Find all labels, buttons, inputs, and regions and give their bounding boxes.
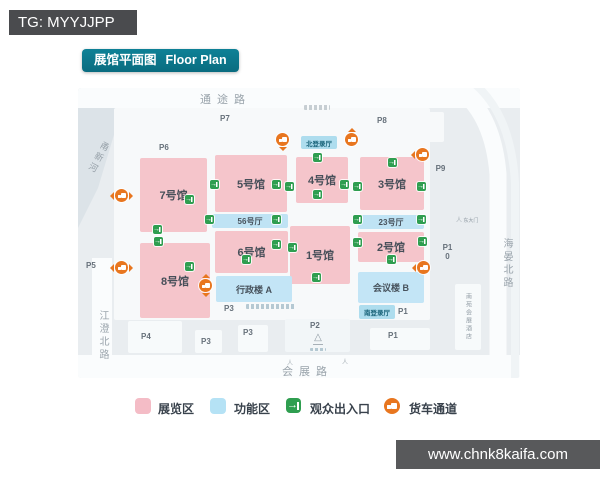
entrance-icon xyxy=(272,215,281,224)
tiny-text-smudge xyxy=(304,105,330,110)
truck-route-icon xyxy=(115,261,128,274)
parking-label-p1a: P1 xyxy=(398,307,408,316)
parking-label-p5: P5 xyxy=(86,261,96,270)
page-title: 展馆平面图Floor Plan xyxy=(82,49,239,72)
entrance-icon xyxy=(154,237,163,246)
pedestrian-icon: 人 xyxy=(456,218,462,224)
truck-route-icon xyxy=(416,148,429,161)
north-lobby: 北登录厅 xyxy=(301,136,337,149)
parking-label-p10: P10 xyxy=(442,243,453,261)
legend: 展览区 功能区 观众出入口 货车通道 xyxy=(0,392,600,422)
truck-route-icon xyxy=(199,279,212,292)
entrance-icon xyxy=(353,238,362,247)
watermark-url: www.chnk8kaifa.com xyxy=(396,440,600,469)
legend-truck-label: 货车通道 xyxy=(409,400,457,417)
road-left-label: 江澄北路 xyxy=(95,310,110,362)
title-en: Floor Plan xyxy=(166,53,227,67)
tiny-text-smudge xyxy=(310,348,326,351)
entrance-icon xyxy=(185,262,194,271)
road-right-label: 海晏北路 xyxy=(499,238,514,290)
entrance-icon xyxy=(272,180,281,189)
road-top-label: 通途路 xyxy=(200,91,251,107)
parking-lot-p1 xyxy=(370,328,430,350)
parking-label-p9: P9 xyxy=(435,164,446,173)
parking-lot-p4 xyxy=(128,321,182,353)
parking-label-p2: P2 xyxy=(310,321,320,330)
entrance-icon xyxy=(153,225,162,234)
tiny-text-smudge xyxy=(246,304,296,309)
truck-route-icon xyxy=(417,261,430,274)
entrance-icon xyxy=(312,273,321,282)
hall-23: 23号厅 xyxy=(358,215,424,229)
legend-function-label: 功能区 xyxy=(234,400,270,417)
truck-route-icon xyxy=(276,133,289,146)
parking-label-p1b: P1 xyxy=(388,331,398,340)
pedestrian-icon: 人 xyxy=(342,357,348,366)
floor-plan-map: 通途路 会展路 江澄北路 海晏北路 甬新河 7号馆 8号馆 5号馆 56号厅 6… xyxy=(78,88,520,378)
parking-label-p3c: P3 xyxy=(243,328,253,337)
legend-exhibition-swatch xyxy=(135,398,151,414)
parking-label-p7: P7 xyxy=(220,114,230,123)
pedestrian-icon: 人 xyxy=(287,358,293,367)
title-cn: 展馆平面图 xyxy=(94,53,157,67)
south-lobby: 南登录厅 xyxy=(359,305,395,319)
conference-building-b: 会议楼 B xyxy=(358,272,424,303)
entrance-icon xyxy=(210,180,219,189)
entrance-icon xyxy=(353,215,362,224)
entrance-icon xyxy=(288,243,297,252)
hotel-building: 南苑会展酒店 xyxy=(455,284,481,350)
hall-6: 6号馆 xyxy=(215,231,288,273)
entrance-icon xyxy=(242,255,251,264)
watermark-tag: TG: MYYJJPP xyxy=(9,10,137,35)
admin-building-a: 行政楼 A xyxy=(216,276,292,302)
truck-route-icon xyxy=(345,133,358,146)
east-gate-label: 人 东大门 xyxy=(456,215,478,224)
entrance-icon xyxy=(285,182,294,191)
legend-exhibition-label: 展览区 xyxy=(158,400,194,417)
entrance-icon xyxy=(388,158,397,167)
legend-truck-icon xyxy=(384,398,400,414)
legend-entrance-icon xyxy=(286,398,301,413)
parking-label-p3a: P3 xyxy=(224,304,234,313)
hall-7: 7号馆 xyxy=(140,158,207,232)
entrance-icon xyxy=(387,255,396,264)
entrance-icon xyxy=(313,153,322,162)
parking-label-p6: P6 xyxy=(159,143,169,152)
entrance-icon xyxy=(418,237,427,246)
parking-label-p3b: P3 xyxy=(201,337,211,346)
entrance-icon xyxy=(340,180,349,189)
entrance-icon xyxy=(205,215,214,224)
parking-label-p4: P4 xyxy=(141,332,151,341)
truck-route-icon xyxy=(115,189,128,202)
entrance-icon xyxy=(417,215,426,224)
entrance-icon xyxy=(417,182,426,191)
legend-function-swatch xyxy=(210,398,226,414)
entrance-icon xyxy=(185,195,194,204)
parking-label-p8: P8 xyxy=(377,116,387,125)
floor-plan-image: TG: MYYJJPP 展馆平面图Floor Plan 通途路 会展路 江澄北路… xyxy=(0,0,600,480)
entrance-icon xyxy=(353,182,362,191)
tower-landmark-icon: △ xyxy=(312,333,324,345)
entrance-icon xyxy=(272,240,281,249)
entrance-icon xyxy=(313,190,322,199)
legend-entrance-label: 观众出入口 xyxy=(310,400,370,417)
